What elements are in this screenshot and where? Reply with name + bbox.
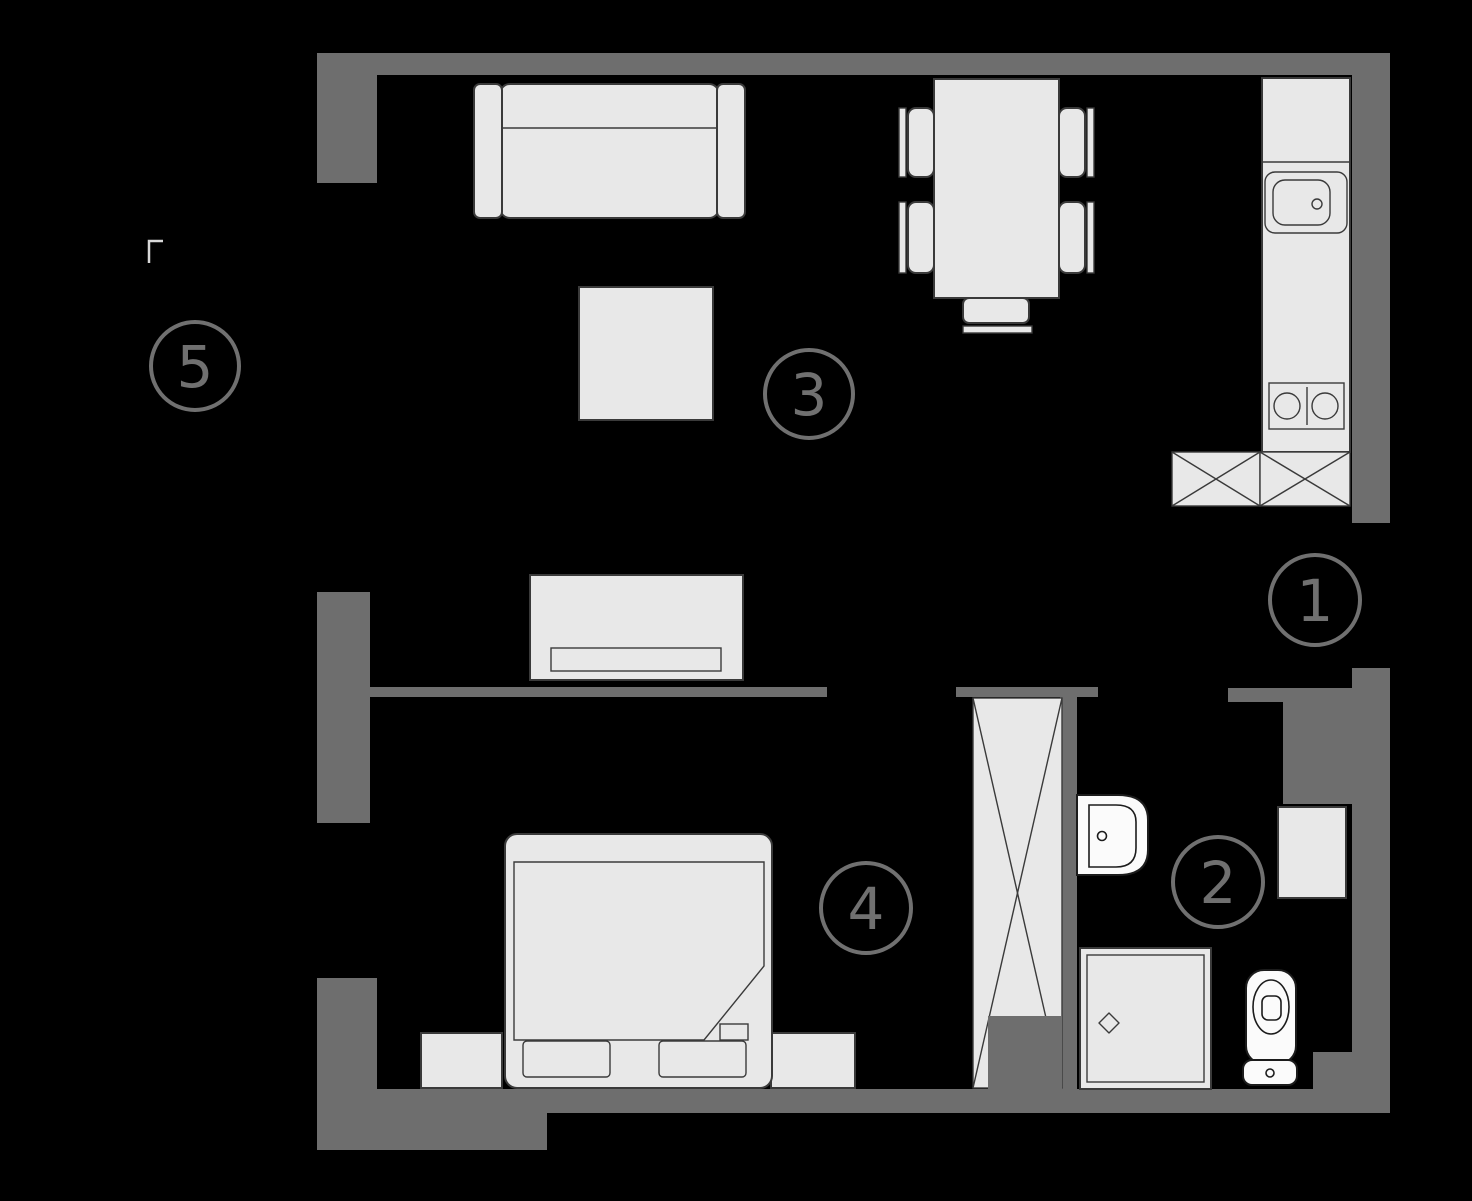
tv-stand-icon <box>530 575 743 680</box>
bathroom-top-wall <box>1228 688 1352 702</box>
chair-seat-bottom-left <box>908 202 934 273</box>
room-label-3: 3 <box>765 350 853 438</box>
room-label-1: 1 <box>1270 555 1360 645</box>
left-wall-middle <box>317 592 370 823</box>
partition-living-bedroom <box>365 687 827 697</box>
balcony-corner-mark <box>149 241 163 263</box>
right-wall-upper <box>1352 53 1390 523</box>
sofa-icon <box>474 84 745 218</box>
room-label-5: 5 <box>151 322 239 410</box>
balcony <box>149 241 163 263</box>
bathroom-sink-icon <box>1077 795 1148 875</box>
room-label-2: 2 <box>1173 837 1263 927</box>
bed-icon <box>505 834 772 1088</box>
closet-bottom-block <box>988 1016 1062 1089</box>
sofa-armrest-right <box>717 84 745 218</box>
label-number: 1 <box>1297 567 1334 635</box>
toilet-tank <box>1243 1060 1297 1085</box>
chair-back-bottom-center <box>963 326 1032 333</box>
top-wall <box>317 53 1390 75</box>
tv-screen <box>551 648 721 671</box>
washing-machine-icon <box>1278 807 1346 898</box>
bedroom <box>421 834 855 1088</box>
shower-icon <box>1080 948 1211 1089</box>
chair-seat-bottom-right <box>1059 202 1085 273</box>
bed-blanket <box>514 862 764 1040</box>
left-wall-upper <box>317 53 377 183</box>
coffee-table-icon <box>579 287 713 420</box>
room-label-4: 4 <box>821 863 911 953</box>
toilet-icon <box>1243 970 1297 1085</box>
dining-set <box>899 79 1094 333</box>
shower-tray <box>1080 948 1211 1089</box>
kitchen <box>1172 78 1350 506</box>
toilet-niche-block <box>1313 1052 1352 1089</box>
chair-back-top-right <box>1087 108 1094 177</box>
living-room <box>474 78 1350 680</box>
sofa-armrest-left <box>474 84 502 218</box>
closet <box>973 698 1062 1089</box>
sink-outer <box>1077 795 1148 875</box>
chair-seat-bottom-center <box>963 298 1029 323</box>
chair-back-bottom-right <box>1087 202 1094 273</box>
bottom-wall-thick-section <box>317 1113 547 1150</box>
right-wall-lower <box>1352 668 1390 1113</box>
chair-seat-top-left <box>908 108 934 177</box>
chair-back-top-left <box>899 108 906 177</box>
floor-plan-page: 1 2 3 4 5 <box>0 0 1472 1201</box>
label-number: 4 <box>848 875 885 943</box>
nightstand-left <box>421 1033 502 1088</box>
cabinet-x-right <box>1260 452 1350 506</box>
blanket-fold-notch <box>720 1024 748 1040</box>
floor-plan: 1 2 3 4 5 <box>0 0 1472 1201</box>
label-number: 2 <box>1200 849 1237 917</box>
chair-seat-top-right <box>1059 108 1085 177</box>
left-wall-lower <box>317 978 377 1090</box>
nightstand-right <box>771 1033 855 1088</box>
cabinet-x-left <box>1172 452 1260 506</box>
bathroom-duct-block <box>1283 702 1352 804</box>
sofa-body <box>500 84 719 218</box>
label-number: 3 <box>791 361 828 429</box>
chair-back-bottom-left <box>899 202 906 273</box>
pillow-right <box>659 1041 746 1077</box>
label-number: 5 <box>177 333 214 401</box>
pillow-left <box>523 1041 610 1077</box>
dining-table-icon <box>934 79 1059 298</box>
bottom-wall <box>317 1089 1390 1113</box>
